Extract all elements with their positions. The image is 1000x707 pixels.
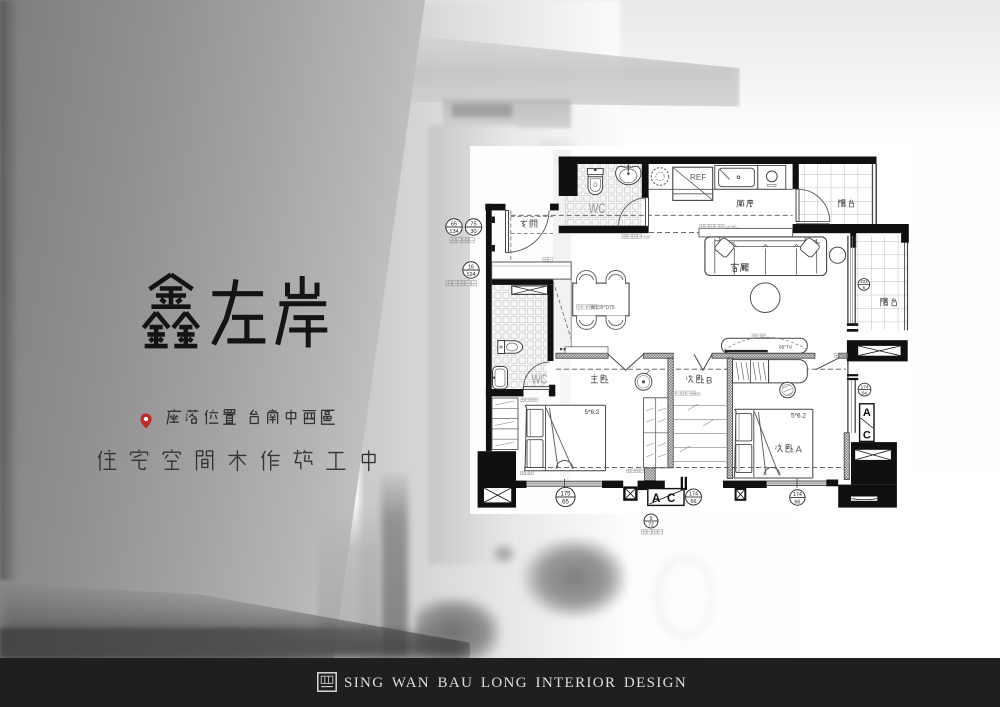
svg-text:A: A <box>652 493 660 505</box>
svg-text:65"TV: 65"TV <box>779 344 793 350</box>
svg-text:5*6.2: 5*6.2 <box>585 409 600 416</box>
svg-text:B: B <box>706 375 712 386</box>
svg-text:174: 174 <box>793 492 802 498</box>
svg-text:A: A <box>796 445 803 456</box>
svg-text:+20: +20 <box>693 392 701 397</box>
svg-text:H100: H100 <box>726 224 737 229</box>
svg-text:WC: WC <box>532 373 548 387</box>
svg-text:72: 72 <box>648 522 654 528</box>
svg-text:66: 66 <box>794 499 800 505</box>
svg-text:65: 65 <box>451 222 457 228</box>
svg-text:30: 30 <box>470 229 476 235</box>
svg-text:A: A <box>863 407 871 419</box>
svg-text:124: 124 <box>466 272 475 278</box>
svg-text:WC: WC <box>589 201 606 216</box>
svg-text:+100: +100 <box>641 234 651 239</box>
svg-text:75: 75 <box>470 222 476 228</box>
svg-text:66: 66 <box>691 499 697 505</box>
svg-text:5*6.2: 5*6.2 <box>791 413 806 420</box>
svg-text:233: 233 <box>860 279 868 284</box>
svg-text:W135*D75: W135*D75 <box>591 305 615 311</box>
svg-text:65: 65 <box>562 500 569 506</box>
svg-text:C: C <box>667 493 675 505</box>
svg-text:REF: REF <box>690 173 706 182</box>
svg-text:174: 174 <box>689 492 698 498</box>
svg-text:174: 174 <box>861 384 869 389</box>
svg-text:134: 134 <box>449 229 458 235</box>
svg-text:64: 64 <box>862 391 868 396</box>
svg-text:C: C <box>863 430 871 442</box>
svg-text:16: 16 <box>468 265 474 271</box>
svg-text:175: 175 <box>560 491 571 497</box>
svg-text:9: 9 <box>650 516 653 522</box>
